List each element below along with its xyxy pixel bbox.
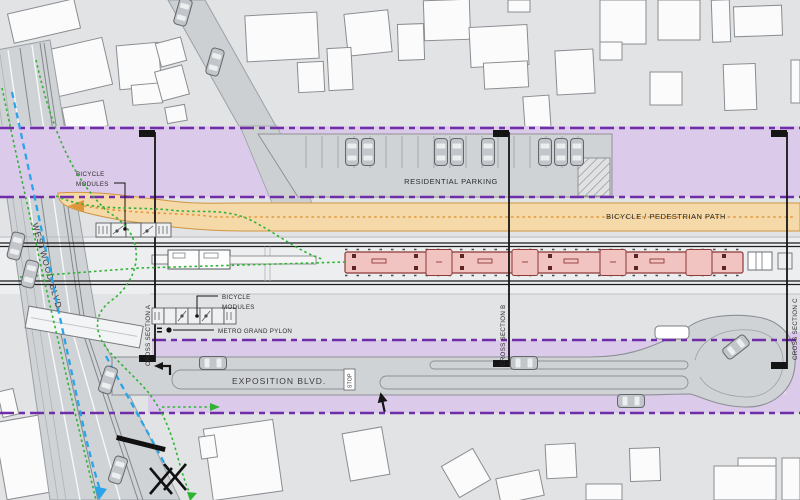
stop-marking: STOP xyxy=(344,369,355,390)
bike-ped-path-label: BICYCLE / PEDESTRIAN PATH xyxy=(606,212,726,221)
light-rail-train xyxy=(345,250,792,276)
site-plan: RESIDENTIAL PARKING BICYCLE / PEDESTRIAN… xyxy=(0,0,800,500)
bicycle-modules-south-label-1: BICYCLE xyxy=(222,294,251,301)
bicycle-modules-south-label-2: MODULES xyxy=(222,304,255,311)
cross-section-c-label: CROSS SECTION C xyxy=(792,298,799,360)
stop-label: STOP xyxy=(348,373,354,388)
bicycle-modules-north-label-1: BICYCLE xyxy=(76,171,105,178)
shuttle-vehicle xyxy=(655,326,689,339)
pylon-symbol xyxy=(166,327,171,332)
cross-section-a-label: CROSS SECTION A xyxy=(145,304,152,366)
residential-parking-label: RESIDENTIAL PARKING xyxy=(404,177,498,186)
cross-section-b-label: CROSS SECTION B xyxy=(500,304,507,366)
median-strip-2 xyxy=(380,376,688,389)
site-plan-canvas: RESIDENTIAL PARKING BICYCLE / PEDESTRIAN… xyxy=(0,0,800,500)
metro-grand-pylon-label: METRO GRAND PYLON xyxy=(218,328,292,335)
exposition-blvd-label: EXPOSITION BLVD. xyxy=(232,376,326,386)
bicycle-modules-north-label-2: MODULES xyxy=(76,181,109,188)
median-strip-1 xyxy=(430,361,688,369)
